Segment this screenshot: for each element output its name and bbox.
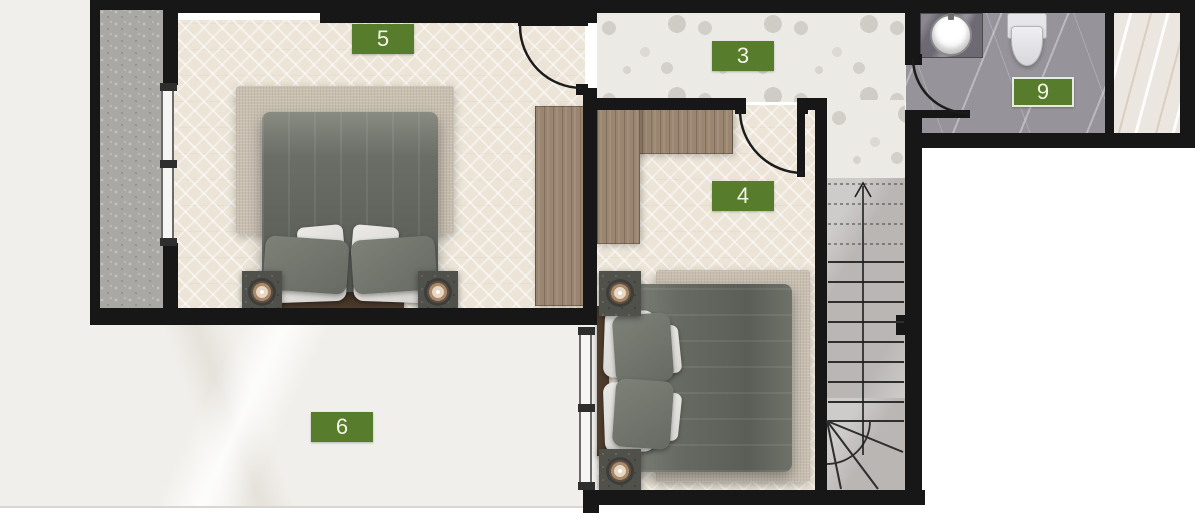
door-leaf-bedroom-5 [518, 18, 588, 26]
room-label-4: 4 [712, 181, 774, 211]
floor-plan: 5 3 4 9 6 [0, 0, 1200, 521]
wall [583, 88, 597, 310]
door-jamb [735, 98, 746, 114]
terrace-edge-line [0, 506, 585, 508]
stairwell-floor [827, 178, 905, 492]
wall [583, 490, 925, 505]
wall [905, 116, 922, 505]
wall [90, 0, 100, 325]
wall [1105, 12, 1114, 133]
wall [896, 315, 908, 335]
bedroom-4-wardrobe-leg [597, 104, 640, 244]
window-balcony [161, 83, 174, 246]
room-label-6: 6 [311, 412, 373, 442]
faucet [948, 12, 954, 20]
wall [163, 243, 178, 313]
window-cap [160, 238, 177, 246]
table-lamp [606, 279, 634, 307]
sink-basin [930, 14, 972, 56]
wall [905, 133, 1195, 148]
window-cap [578, 482, 595, 490]
balcony-floor [99, 8, 163, 313]
window-cap [578, 327, 595, 335]
door-jamb [576, 84, 588, 95]
wall [163, 0, 178, 85]
bedroom-5-wardrobe [535, 106, 585, 306]
table-lamp [424, 278, 452, 306]
wall [815, 98, 827, 505]
bed-4-pillow-gray [612, 312, 675, 384]
wall [90, 308, 597, 325]
wall [597, 98, 737, 110]
bed-4-pillow-gray [612, 378, 675, 450]
window-cap [160, 83, 177, 91]
terrace-6-floor [0, 325, 597, 508]
door-jamb [905, 54, 922, 65]
stair-landing-floor [827, 100, 905, 180]
window-cap [160, 160, 177, 168]
window-cap [578, 404, 595, 412]
wall [1180, 0, 1195, 148]
wall [583, 505, 599, 513]
room-label-3: 3 [712, 41, 774, 71]
room-label-9: 9 [1012, 77, 1074, 107]
door-leaf-bathroom-9 [912, 110, 970, 118]
window-terrace [579, 327, 592, 490]
room-label-5: 5 [352, 24, 414, 54]
table-lamp [248, 278, 276, 306]
door-leaf-bedroom-4 [797, 103, 805, 177]
table-lamp [606, 457, 634, 485]
shaft-floor [1113, 12, 1180, 133]
